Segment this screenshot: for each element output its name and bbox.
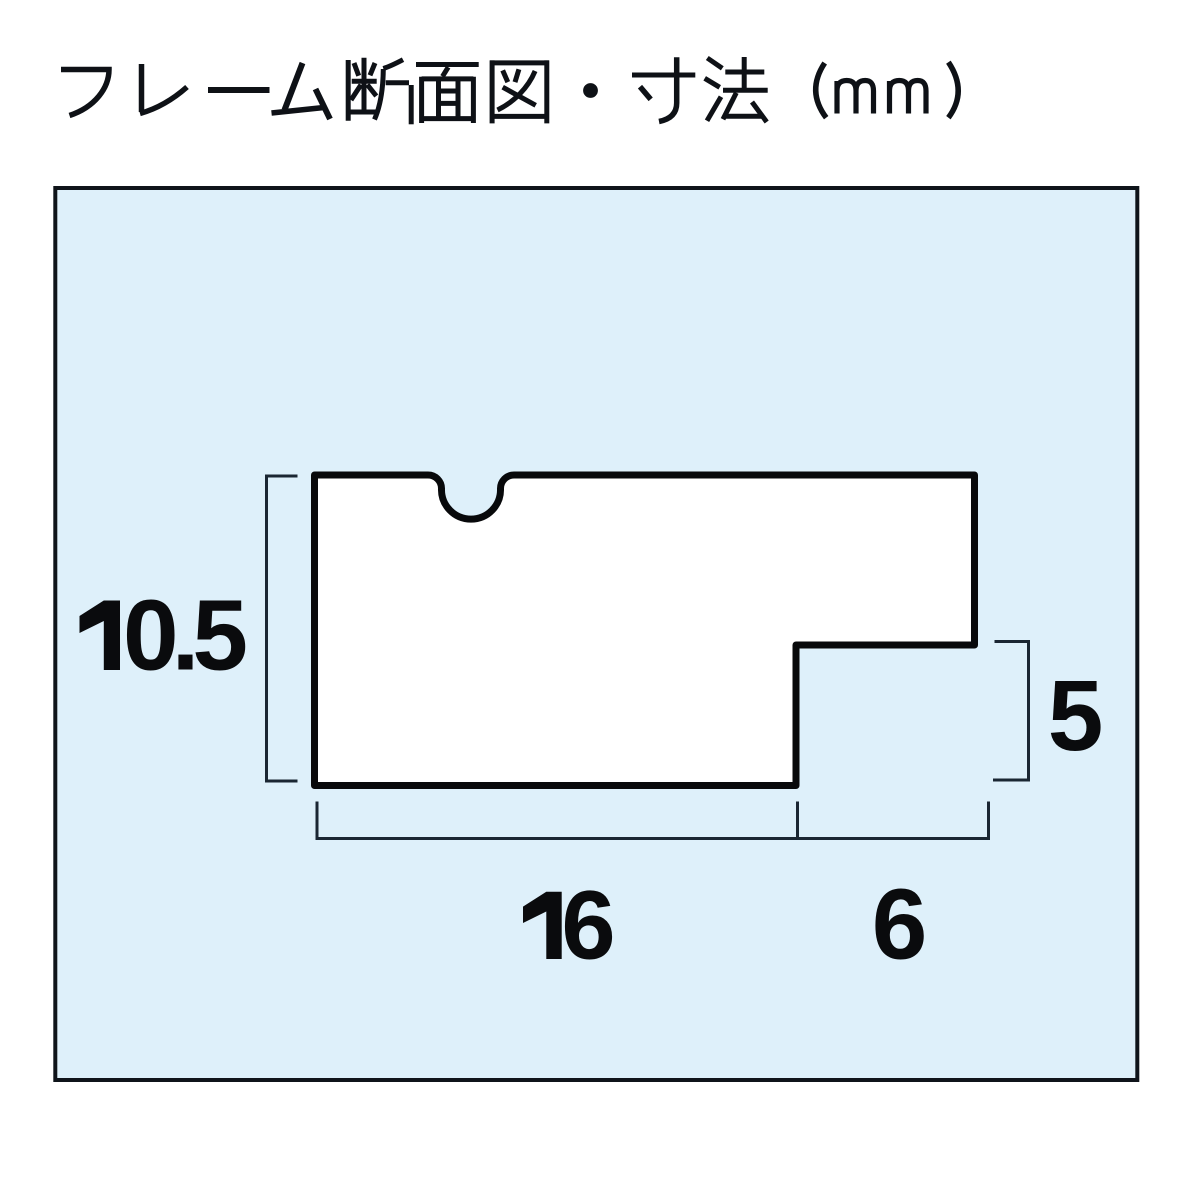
svg-text:5: 5 bbox=[1048, 660, 1104, 772]
svg-text:0.5: 0.5 bbox=[123, 580, 245, 692]
svg-text:6: 6 bbox=[561, 871, 615, 980]
svg-text:6: 6 bbox=[872, 869, 928, 981]
